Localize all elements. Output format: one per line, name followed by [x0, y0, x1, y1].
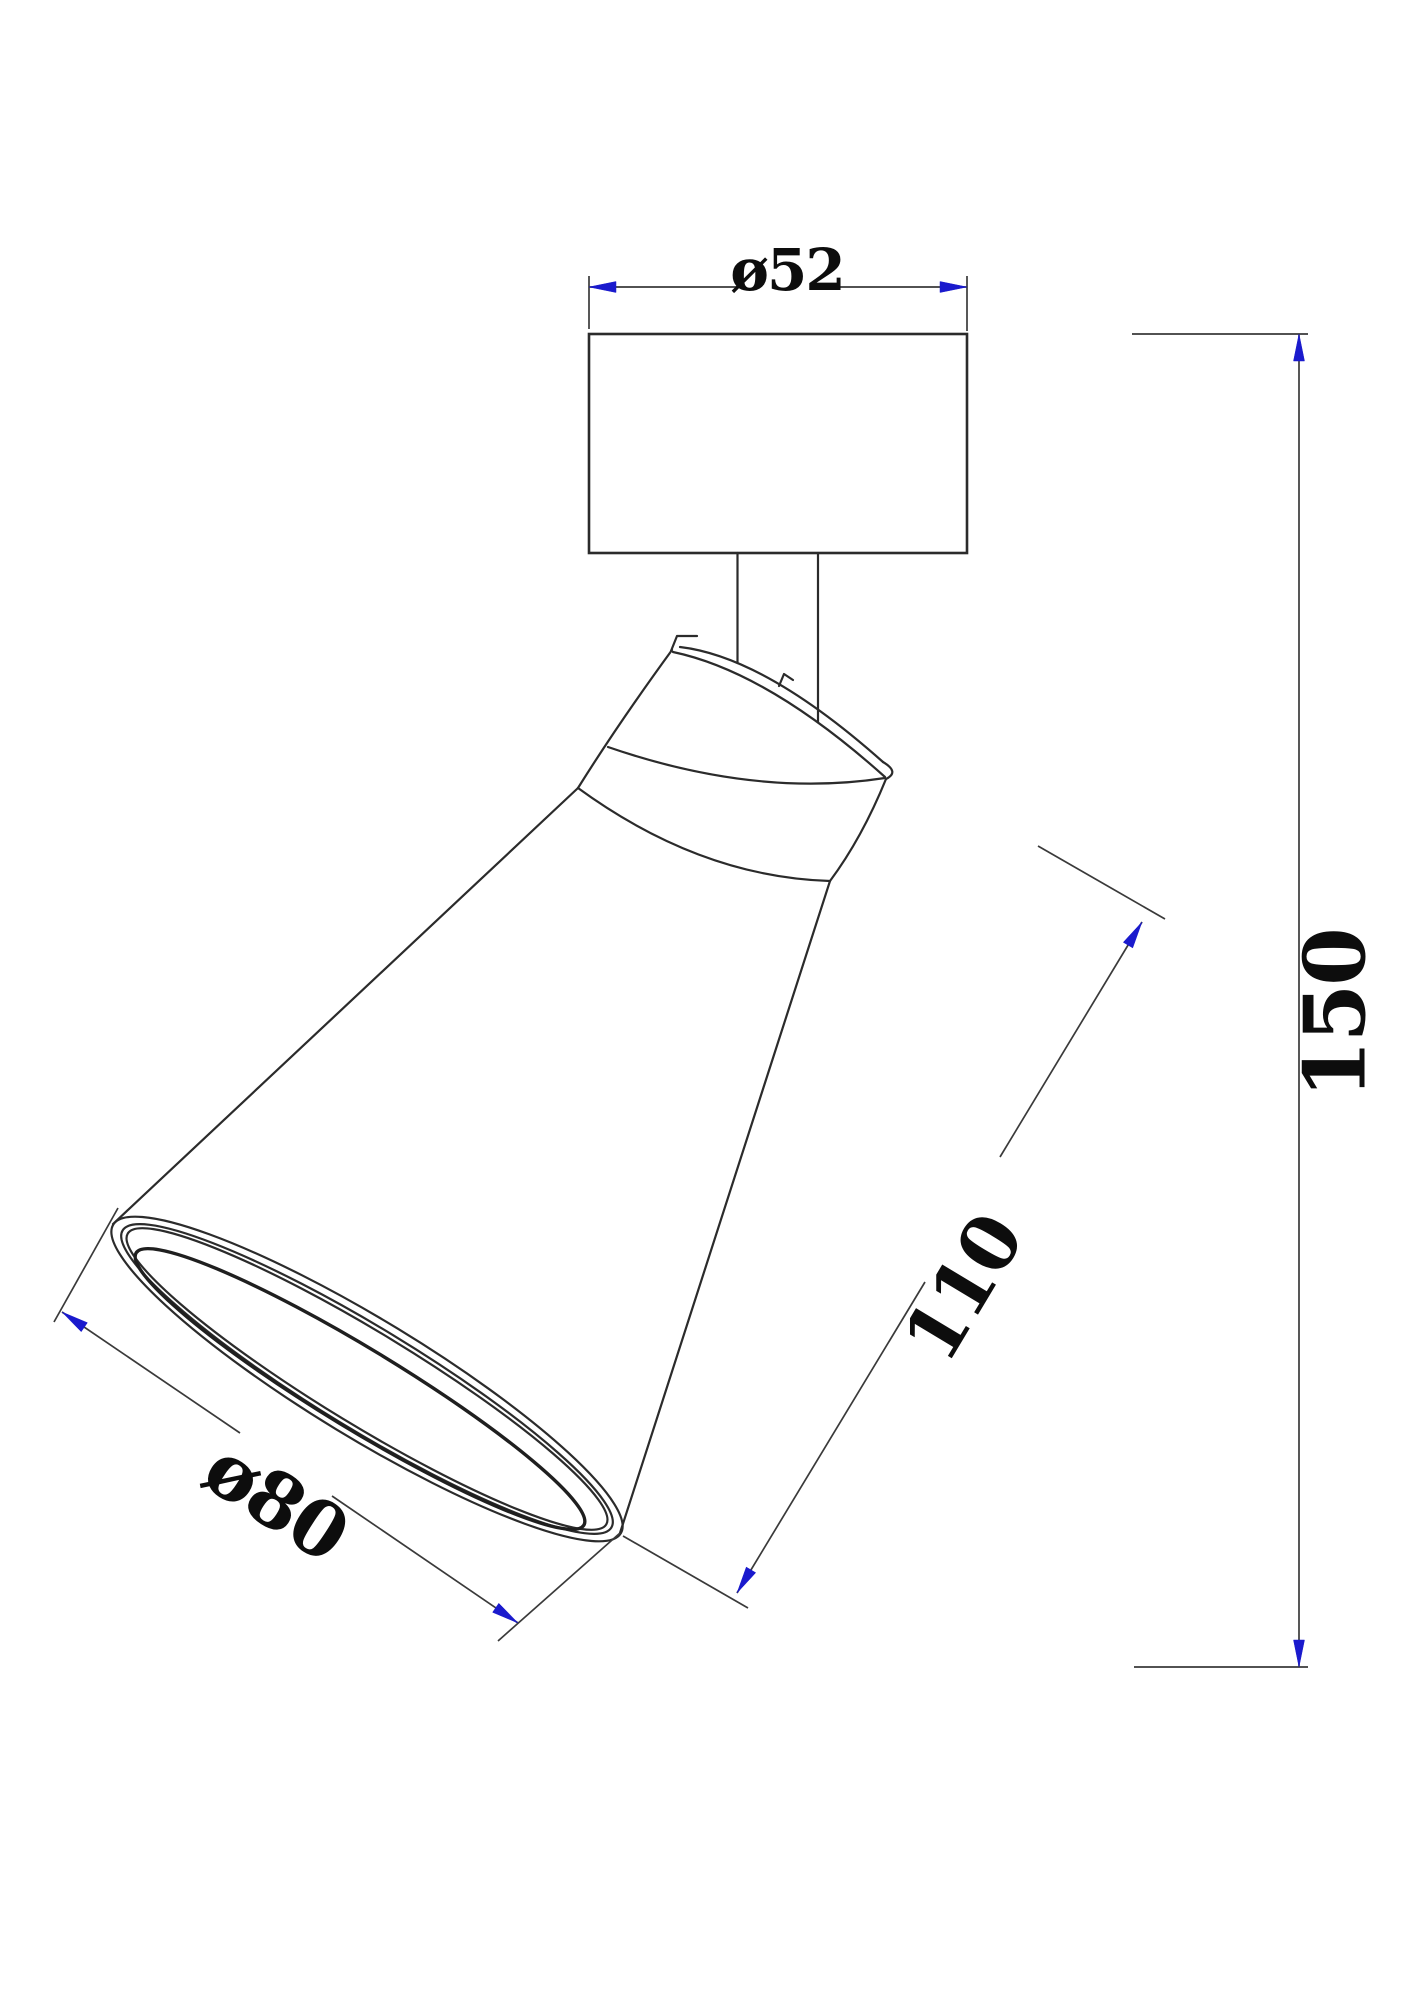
- spotlight-dimension-drawing: ø52 150 110 ø80: [0, 0, 1414, 2000]
- dim52-label: ø52: [730, 236, 843, 304]
- drawing-background: [0, 0, 1414, 2000]
- dim150-label: 150: [1286, 929, 1385, 1098]
- dimension-drawing-page: ø52 150 110 ø80: [0, 0, 1414, 2000]
